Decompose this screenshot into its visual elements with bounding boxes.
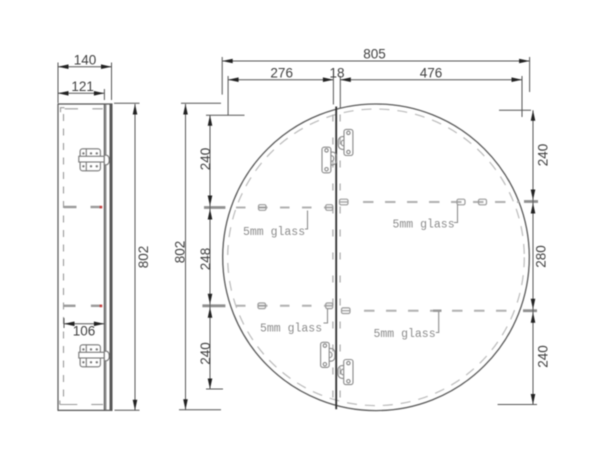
svg-text:248: 248 [198, 248, 213, 271]
svg-text:280: 280 [534, 245, 549, 268]
svg-text:802: 802 [136, 246, 151, 269]
svg-text:106: 106 [73, 324, 96, 339]
svg-text:121: 121 [71, 79, 94, 94]
svg-text:802: 802 [172, 241, 187, 264]
svg-text:18: 18 [329, 66, 344, 81]
svg-text:5mm glass: 5mm glass [260, 323, 322, 336]
svg-text:276: 276 [270, 66, 293, 81]
svg-text:140: 140 [74, 53, 97, 68]
svg-text:240: 240 [535, 144, 550, 167]
svg-text:476: 476 [420, 66, 443, 81]
svg-text:240: 240 [198, 148, 213, 171]
svg-text:240: 240 [198, 342, 213, 365]
svg-text:5mm glass: 5mm glass [393, 218, 455, 231]
svg-text:805: 805 [363, 47, 386, 62]
svg-text:5mm glass: 5mm glass [243, 226, 305, 239]
svg-text:240: 240 [535, 345, 550, 368]
svg-text:5mm glass: 5mm glass [374, 328, 436, 341]
